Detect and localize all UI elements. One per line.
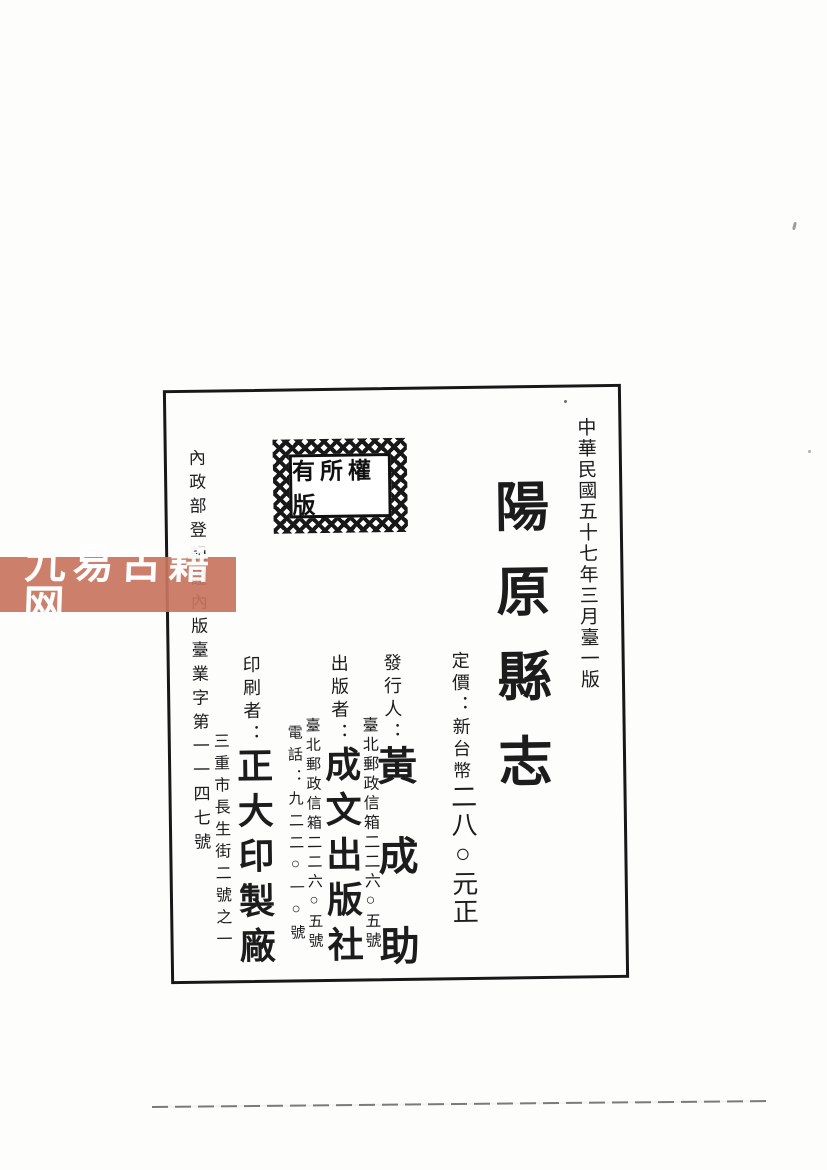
scan-speck <box>564 400 567 403</box>
copyright-stamp: 有所權版 <box>273 438 408 534</box>
scan-artifact-line <box>152 1100 767 1108</box>
price-column: 定價：新台幣二八○元正 <box>447 651 477 926</box>
edition-date: 中華民國五十七年三月臺一版 <box>575 417 598 690</box>
publisher-address: 臺北郵政信箱二二六○五號 <box>303 717 321 952</box>
price-label: 定價： <box>450 651 471 717</box>
issuer-label: 發行人： <box>382 653 403 745</box>
issuer-address: 臺北郵政信箱二二六○五號 <box>359 716 378 951</box>
price-amount: 二八○元正 <box>447 783 478 926</box>
scan-speck <box>808 450 811 453</box>
publisher-label: 出版者： <box>329 654 350 746</box>
watermark-text: 九易古籍网 <box>0 544 237 626</box>
registration-number: 內政部登記證內版臺業字第一一四七號 <box>187 449 210 857</box>
watermark-banner: 九易古籍网 <box>0 557 236 612</box>
publisher-name: 成文出版社 <box>320 746 363 972</box>
printer-name: 正大印製廠 <box>232 747 275 973</box>
publisher-phone: 電話：九二二○一○號 <box>286 724 304 946</box>
scan-speck <box>792 222 797 230</box>
issuer-column: 發行人：黃成助 <box>372 653 417 1016</box>
printer-column: 印刷者：正大印製廠 <box>233 655 273 972</box>
publisher-column: 出版者：成文出版社 <box>321 654 361 971</box>
price-currency: 新台幣 <box>450 717 471 783</box>
scanned-colophon-page: 中華民國五十七年三月臺一版 陽原縣志 有所權版 內政部登記證內版臺業字第一一四七… <box>0 0 827 1170</box>
printer-label: 印刷者： <box>241 655 262 747</box>
copyright-stamp-text: 有所權版 <box>289 453 392 518</box>
book-title: 陽原縣志 <box>489 478 548 819</box>
colophon-frame: 中華民國五十七年三月臺一版 陽原縣志 有所權版 內政部登記證內版臺業字第一一四七… <box>163 384 629 984</box>
printer-address: 三重市長生街二號之一 <box>211 732 230 952</box>
